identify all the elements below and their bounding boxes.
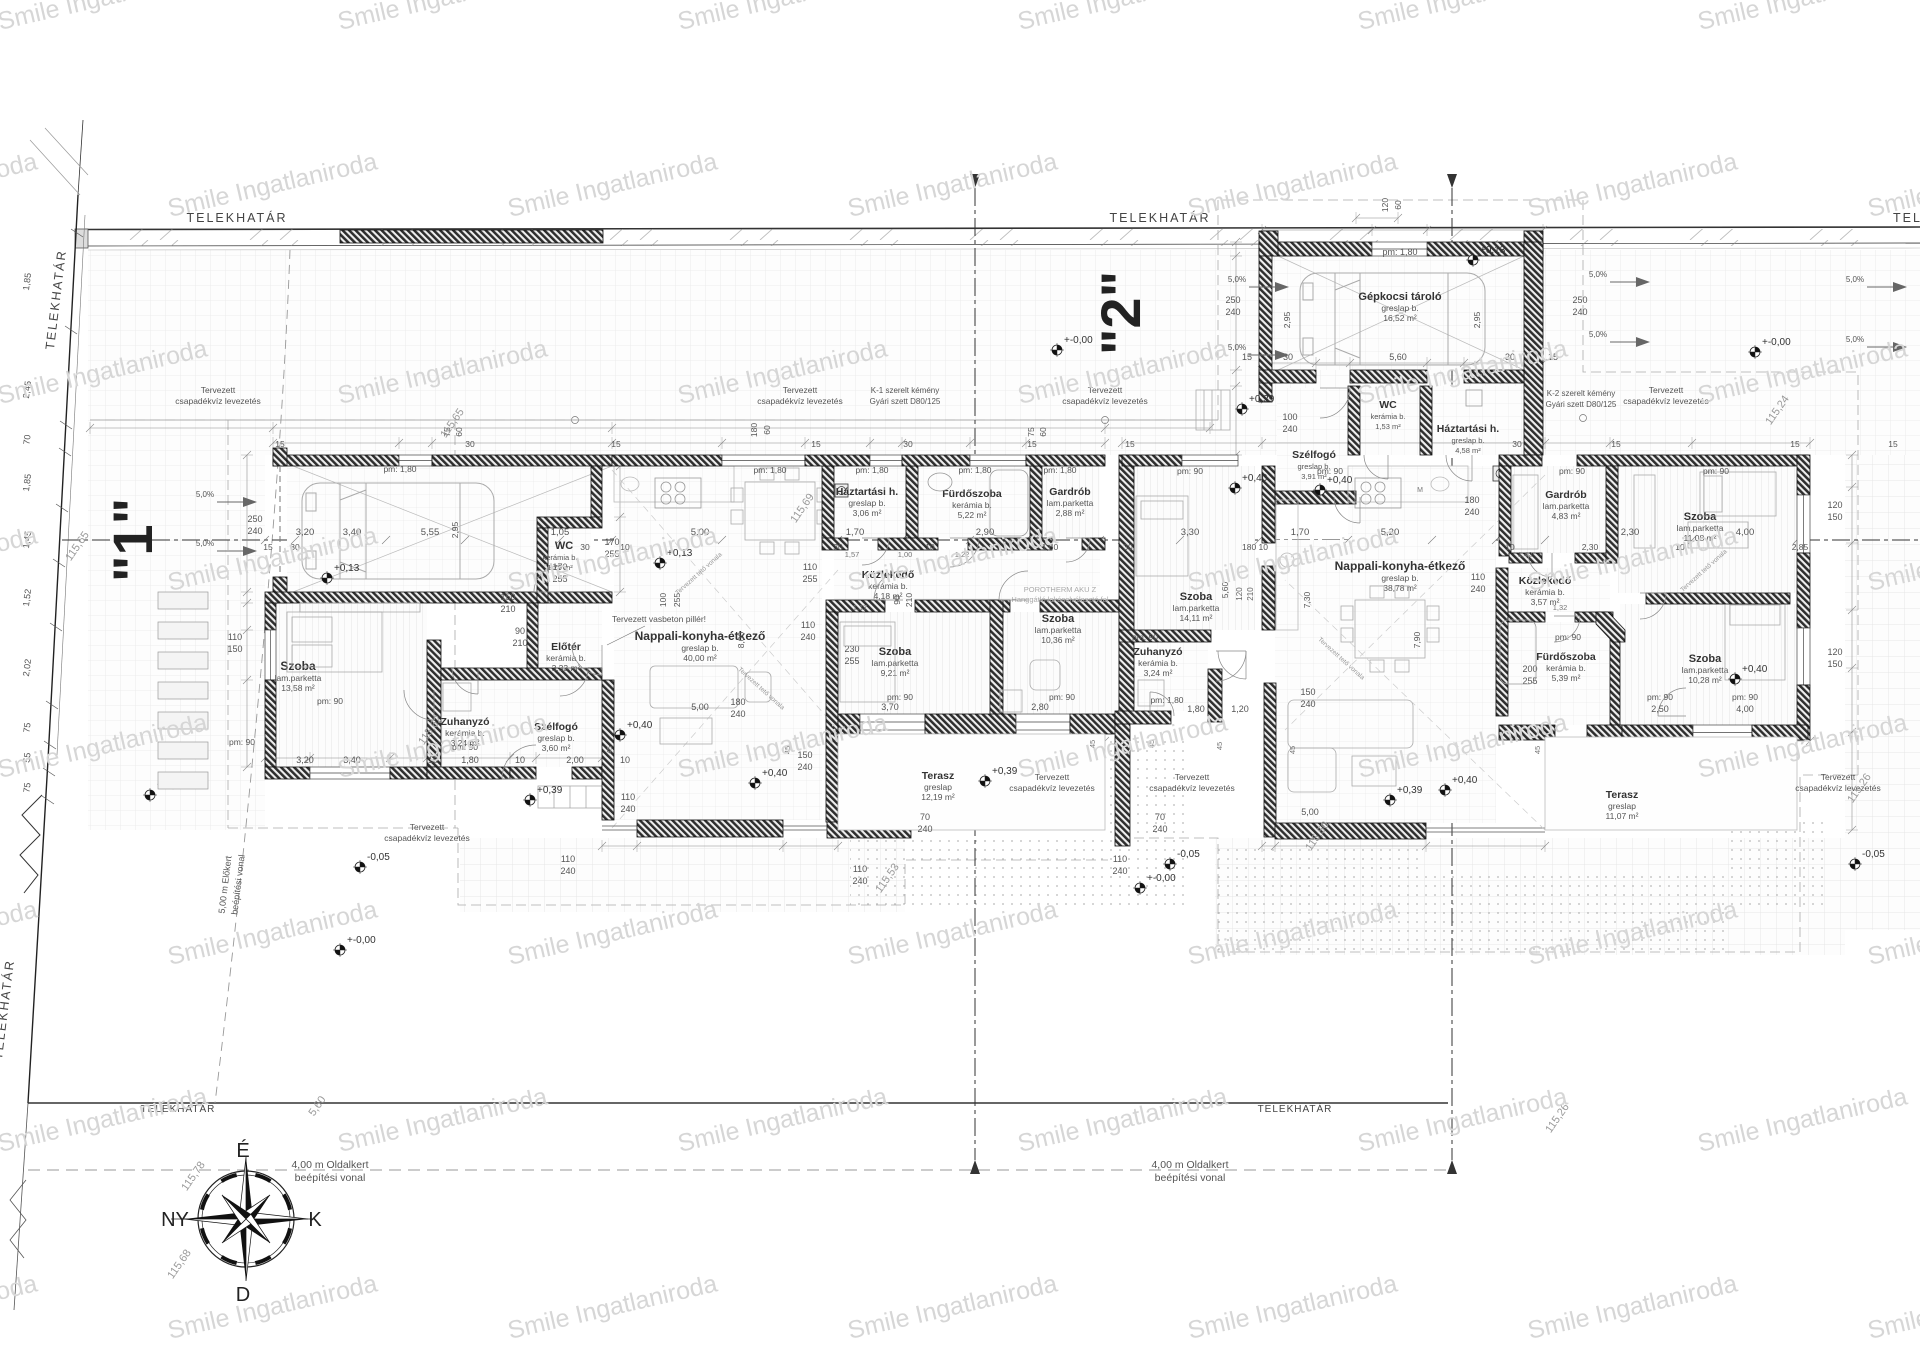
- svg-text:pm: 90: pm: 90: [1647, 692, 1673, 702]
- svg-text:kerámia b.: kerámia b.: [546, 653, 586, 663]
- svg-text:45: 45: [1288, 746, 1297, 754]
- svg-text:-0,05: -0,05: [1177, 849, 1200, 860]
- svg-text:kerámia b.: kerámia b.: [1370, 412, 1405, 421]
- svg-text:240: 240: [1152, 824, 1167, 834]
- svg-text:2,02: 2,02: [21, 658, 33, 677]
- svg-text:4,00 m Oldalkert: 4,00 m Oldalkert: [1151, 1159, 1228, 1171]
- svg-text:+-0,00: +-0,00: [347, 935, 376, 946]
- svg-text:Tervezett: Tervezett: [783, 385, 818, 395]
- svg-text:110: 110: [803, 562, 817, 572]
- svg-text:10: 10: [620, 755, 630, 765]
- svg-text:200: 200: [1522, 664, 1537, 674]
- svg-text:lam.parketta: lam.parketta: [1173, 603, 1220, 613]
- svg-text:240: 240: [1282, 424, 1297, 434]
- svg-text:15: 15: [811, 439, 821, 449]
- svg-text:Nappali-konyha-étkező: Nappali-konyha-étkező: [1335, 559, 1466, 573]
- svg-text:kerámia b.: kerámia b.: [1546, 663, 1586, 673]
- svg-text:1,53 m²: 1,53 m²: [1375, 422, 1401, 431]
- svg-text:csapadékvíz levezetés: csapadékvíz levezetés: [175, 396, 261, 406]
- svg-text:Szoba: Szoba: [879, 646, 912, 658]
- svg-text:pm: 90: pm: 90: [1049, 692, 1075, 702]
- svg-text:150: 150: [1827, 659, 1842, 669]
- svg-text:75: 75: [1026, 427, 1036, 437]
- svg-text:Hanggátló lakáselválasztó fal: Hanggátló lakáselválasztó fal: [1011, 595, 1108, 604]
- svg-text:240: 240: [917, 824, 932, 834]
- svg-text:10,28 m²: 10,28 m²: [1688, 675, 1722, 685]
- svg-text:2,50: 2,50: [1651, 704, 1669, 714]
- svg-text:5,60: 5,60: [1389, 352, 1407, 362]
- svg-text:+0,39: +0,39: [1397, 785, 1423, 796]
- svg-text:70: 70: [920, 812, 930, 822]
- svg-text:1,17: 1,17: [853, 603, 868, 612]
- svg-text:Gépkocsi tároló: Gépkocsi tároló: [1358, 291, 1441, 303]
- svg-text:60: 60: [762, 425, 772, 435]
- svg-text:pm: 1,80: pm: 1,80: [958, 465, 991, 475]
- svg-text:7,30: 7,30: [1302, 591, 1312, 608]
- svg-text:240: 240: [1112, 866, 1127, 876]
- svg-text:+0,13: +0,13: [334, 563, 360, 574]
- svg-text:pm: 90: pm: 90: [229, 737, 255, 747]
- svg-text:2,95: 2,95: [450, 521, 460, 538]
- svg-text:K: K: [308, 1209, 322, 1231]
- svg-text:10: 10: [515, 755, 525, 765]
- svg-text:5,39 m²: 5,39 m²: [1552, 673, 1581, 683]
- svg-text:4,58 m²: 4,58 m²: [1455, 446, 1481, 455]
- svg-text:+0,40: +0,40: [627, 720, 653, 731]
- svg-text:5,0%: 5,0%: [1589, 330, 1607, 339]
- svg-text:15: 15: [1790, 439, 1800, 449]
- svg-text:120: 120: [1827, 647, 1842, 657]
- svg-text:greslap: greslap: [1608, 801, 1636, 811]
- svg-text:110: 110: [561, 854, 575, 864]
- svg-text:Gyári szett D80/125: Gyári szett D80/125: [1546, 400, 1617, 409]
- svg-text:Gardrób: Gardrób: [1049, 486, 1090, 498]
- svg-text:lam.parketta: lam.parketta: [1035, 625, 1082, 635]
- svg-text:M: M: [1417, 487, 1423, 494]
- svg-text:lam.parketta: lam.parketta: [275, 673, 322, 683]
- svg-text:30: 30: [1123, 542, 1133, 552]
- svg-text:Tervezett: Tervezett: [410, 822, 445, 832]
- svg-text:110: 110: [621, 792, 635, 802]
- svg-text:7,90: 7,90: [1412, 631, 1422, 648]
- svg-text:5,0%: 5,0%: [1589, 270, 1607, 279]
- svg-text:pm: 90: pm: 90: [1177, 466, 1203, 476]
- svg-text:K-2 szerelt kémény: K-2 szerelt kémény: [1547, 389, 1615, 398]
- svg-text:250: 250: [247, 514, 262, 524]
- svg-text:pm: 1,80: pm: 1,80: [1043, 465, 1076, 475]
- svg-text:2,80: 2,80: [1031, 702, 1049, 712]
- svg-text:120: 120: [1827, 500, 1842, 510]
- svg-text:240: 240: [797, 762, 812, 772]
- svg-text:60: 60: [1038, 427, 1048, 437]
- svg-text:110: 110: [1113, 854, 1127, 864]
- svg-text:2,00: 2,00: [566, 755, 584, 765]
- svg-text:180: 180: [749, 423, 759, 437]
- svg-text:kerámia b.: kerámia b.: [1138, 658, 1178, 668]
- svg-text:240: 240: [1572, 307, 1587, 317]
- svg-text:5,0%: 5,0%: [1228, 275, 1246, 284]
- svg-text:+-0,00: +-0,00: [1147, 873, 1176, 884]
- svg-text:Háztartási h.: Háztartási h.: [836, 486, 899, 498]
- svg-text:210: 210: [512, 638, 527, 648]
- svg-text:Gardrób: Gardrób: [1545, 489, 1586, 501]
- svg-text:5,22 m²: 5,22 m²: [958, 510, 987, 520]
- svg-text:15: 15: [1125, 439, 1135, 449]
- svg-text:70: 70: [1155, 812, 1165, 822]
- svg-text:+0,40: +0,40: [1327, 475, 1353, 486]
- svg-text:100: 100: [1282, 412, 1297, 422]
- svg-text:kerámia b.: kerámia b.: [952, 500, 992, 510]
- svg-text:Szoba: Szoba: [280, 659, 316, 673]
- svg-text:-0,05: -0,05: [1862, 849, 1885, 860]
- svg-text:110: 110: [801, 620, 815, 630]
- svg-text:30: 30: [1512, 439, 1522, 449]
- svg-text:4,00: 4,00: [1736, 704, 1754, 714]
- svg-text:Szoba: Szoba: [1684, 511, 1717, 523]
- svg-text:240: 240: [852, 876, 867, 886]
- svg-text:30: 30: [833, 542, 843, 552]
- svg-text:120: 120: [1380, 198, 1390, 212]
- svg-text:pm: 90: pm: 90: [1732, 692, 1758, 702]
- svg-text:TELEKHATÁR: TELEKHATÁR: [1258, 1102, 1333, 1115]
- svg-text:150: 150: [1827, 512, 1842, 522]
- svg-text:10,36 m²: 10,36 m²: [1041, 635, 1075, 645]
- svg-text:+0,40: +0,40: [762, 768, 788, 779]
- svg-text:lam.parketta: lam.parketta: [1682, 665, 1729, 675]
- svg-text:csapadékvíz levezetés: csapadékvíz levezetés: [1062, 396, 1148, 406]
- svg-text:16,52 m²: 16,52 m²: [1383, 313, 1417, 323]
- svg-text:pm: 90: pm: 90: [1555, 632, 1581, 642]
- svg-text:3,60 m²: 3,60 m²: [542, 743, 571, 753]
- svg-text:+-0,00: +-0,00: [1762, 337, 1791, 348]
- svg-text:POROTHERM AKU Z: POROTHERM AKU Z: [1024, 585, 1097, 594]
- svg-text:pm: 90: pm: 90: [887, 692, 913, 702]
- svg-text:greslap b.: greslap b.: [681, 643, 718, 653]
- svg-text:240: 240: [1464, 507, 1479, 517]
- svg-text:1,20: 1,20: [1231, 704, 1249, 714]
- svg-text:11,07 m²: 11,07 m²: [1606, 811, 1639, 821]
- svg-text:240: 240: [1300, 699, 1315, 709]
- svg-text:Tervezett: Tervezett: [201, 385, 236, 395]
- svg-text:250: 250: [1572, 295, 1587, 305]
- svg-text:greslap b.: greslap b.: [1381, 573, 1418, 583]
- svg-text:210: 210: [1246, 587, 1255, 601]
- svg-text:Tervezett: Tervezett: [1649, 385, 1684, 395]
- svg-text:Gyári szett D80/125: Gyári szett D80/125: [870, 397, 941, 406]
- svg-text:5,0%: 5,0%: [1228, 343, 1246, 352]
- svg-text:3,20: 3,20: [296, 755, 314, 765]
- svg-text:38,78 m²: 38,78 m²: [1383, 583, 1417, 593]
- svg-text:4,83 m²: 4,83 m²: [1552, 511, 1581, 521]
- svg-text:1,52: 1,52: [21, 588, 33, 607]
- svg-text:pm: 1,80: pm: 1,80: [1382, 247, 1417, 257]
- svg-text:1,32: 1,32: [1553, 603, 1568, 612]
- svg-text:110: 110: [853, 864, 867, 874]
- svg-text:240: 240: [730, 709, 745, 719]
- svg-text:+0,40: +0,40: [1452, 775, 1478, 786]
- svg-text:pm: 1,80: pm: 1,80: [855, 465, 888, 475]
- svg-text:2,88 m²: 2,88 m²: [1056, 508, 1085, 518]
- svg-text:pm: 90: pm: 90: [317, 696, 343, 706]
- svg-text:Szoba: Szoba: [1042, 613, 1075, 625]
- svg-text:230: 230: [844, 644, 859, 654]
- svg-text:+0,13: +0,13: [1480, 245, 1506, 256]
- svg-text:75: 75: [21, 722, 32, 733]
- svg-text:-0,05: -0,05: [367, 852, 390, 863]
- svg-text:pm: 1,80: pm: 1,80: [383, 464, 416, 474]
- svg-text:"1": "1": [101, 498, 164, 582]
- svg-text:45: 45: [1533, 746, 1542, 754]
- svg-text:+0,39: +0,39: [537, 785, 563, 796]
- svg-text:15: 15: [1242, 352, 1252, 362]
- svg-text:100: 100: [658, 593, 668, 607]
- svg-text:210: 210: [500, 604, 515, 614]
- svg-text:150: 150: [227, 644, 242, 654]
- svg-text:1,05: 1,05: [551, 527, 570, 538]
- svg-text:Zuhanyzó: Zuhanyzó: [1134, 646, 1183, 658]
- svg-text:pm: 1,80: pm: 1,80: [753, 465, 786, 475]
- svg-text:WC: WC: [555, 540, 573, 552]
- svg-text:15: 15: [611, 439, 621, 449]
- svg-text:Szoba: Szoba: [1689, 653, 1722, 665]
- svg-text:greslap b.: greslap b.: [848, 498, 885, 508]
- svg-text:30: 30: [903, 439, 913, 449]
- svg-text:3,30: 3,30: [1181, 527, 1200, 538]
- svg-text:240: 240: [620, 804, 635, 814]
- svg-text:30: 30: [465, 439, 475, 449]
- svg-text:csapadékvíz levezetés: csapadékvíz levezetés: [1009, 783, 1095, 793]
- svg-text:1,57: 1,57: [845, 550, 860, 559]
- svg-text:2,95: 2,95: [1472, 311, 1482, 328]
- svg-text:csapadékvíz levezetés: csapadékvíz levezetés: [1623, 396, 1709, 406]
- svg-text:255: 255: [1522, 676, 1537, 686]
- svg-text:Tervezett: Tervezett: [1821, 772, 1856, 782]
- svg-text:4,00 m Oldalkert: 4,00 m Oldalkert: [291, 1159, 368, 1171]
- svg-text:12,19 m²: 12,19 m²: [921, 792, 955, 802]
- svg-text:beépítési vonal: beépítési vonal: [1155, 1172, 1226, 1184]
- svg-text:210: 210: [904, 593, 914, 607]
- svg-text:45: 45: [605, 746, 614, 754]
- svg-text:15: 15: [1611, 439, 1621, 449]
- svg-text:2,85: 2,85: [1792, 542, 1809, 552]
- svg-text:2,95: 2,95: [1282, 311, 1292, 328]
- svg-text:70: 70: [21, 434, 32, 445]
- svg-text:15: 15: [1888, 439, 1898, 449]
- svg-text:2,30: 2,30: [1621, 527, 1640, 538]
- svg-text:15: 15: [1027, 439, 1037, 449]
- svg-text:3,24 m²: 3,24 m²: [1144, 668, 1173, 678]
- svg-text:Tervezett: Tervezett: [1175, 772, 1210, 782]
- svg-text:Háztartási h.: Háztartási h.: [1437, 423, 1500, 435]
- svg-text:Terasz: Terasz: [922, 770, 955, 782]
- svg-text:Fürdőszoba: Fürdőszoba: [942, 488, 1002, 500]
- svg-text:pm: 1,80: pm: 1,80: [1150, 695, 1183, 705]
- svg-text:1,70: 1,70: [1291, 527, 1310, 538]
- svg-text:greslap b.: greslap b.: [1452, 436, 1485, 445]
- svg-text:150: 150: [1300, 687, 1315, 697]
- svg-text:É: É: [236, 1139, 249, 1162]
- svg-text:2,30: 2,30: [1582, 542, 1599, 552]
- svg-text:40,00 m²: 40,00 m²: [683, 653, 717, 663]
- svg-text:110: 110: [228, 632, 242, 642]
- svg-text:120: 120: [1235, 587, 1244, 601]
- svg-text:240: 240: [1225, 307, 1240, 317]
- svg-text:240: 240: [800, 632, 815, 642]
- svg-text:Szélfogó: Szélfogó: [1292, 449, 1336, 461]
- svg-text:Tervezett vasbeton pillér!: Tervezett vasbeton pillér!: [612, 614, 706, 624]
- svg-text:240: 240: [560, 866, 575, 876]
- svg-text:75: 75: [21, 782, 32, 793]
- svg-text:pm: 90: pm: 90: [1559, 466, 1585, 476]
- svg-text:NY: NY: [161, 1209, 189, 1231]
- svg-text:255: 255: [844, 656, 859, 666]
- svg-text:180: 180: [1464, 495, 1479, 505]
- svg-text:14,11 m²: 14,11 m²: [1180, 613, 1213, 623]
- svg-text:5,00: 5,00: [691, 702, 709, 712]
- svg-text:csapadékvíz levezetés: csapadékvíz levezetés: [757, 396, 843, 406]
- svg-text:1,85: 1,85: [21, 473, 33, 492]
- svg-text:1,85: 1,85: [21, 272, 33, 291]
- svg-text:4,00: 4,00: [1736, 527, 1755, 538]
- svg-text:90: 90: [515, 626, 525, 636]
- svg-text:Előtér: Előtér: [551, 641, 581, 653]
- svg-text:1,42: 1,42: [1518, 550, 1533, 559]
- svg-text:pm: 90: pm: 90: [1132, 632, 1158, 642]
- svg-text:5,55: 5,55: [421, 527, 440, 538]
- svg-text:greslap: greslap: [924, 782, 952, 792]
- svg-text:240: 240: [1470, 584, 1485, 594]
- svg-text:lam.parketta: lam.parketta: [1543, 501, 1590, 511]
- svg-text:lam.parketta: lam.parketta: [1047, 498, 1094, 508]
- svg-text:greslap b.: greslap b.: [1381, 303, 1418, 313]
- svg-text:+0,39: +0,39: [992, 766, 1018, 777]
- svg-text:13,58 m²: 13,58 m²: [281, 683, 315, 693]
- svg-text:60: 60: [1393, 200, 1403, 210]
- svg-text:110: 110: [1471, 572, 1485, 582]
- svg-text:csapadékvíz levezetés: csapadékvíz levezetés: [384, 833, 470, 843]
- svg-text:5,00: 5,00: [1301, 807, 1319, 817]
- svg-text:45: 45: [1215, 742, 1224, 750]
- svg-text:8,00: 8,00: [736, 631, 746, 648]
- svg-text:Fürdőszoba: Fürdőszoba: [1536, 651, 1596, 663]
- svg-text:"2": "2": [1089, 271, 1152, 355]
- svg-text:+0,40: +0,40: [1242, 473, 1268, 484]
- svg-text:10: 10: [1505, 542, 1515, 552]
- svg-text:255: 255: [802, 574, 817, 584]
- svg-text:90: 90: [892, 595, 902, 605]
- svg-text:240: 240: [247, 526, 262, 536]
- svg-text:Terasz: Terasz: [1606, 789, 1639, 801]
- svg-text:250: 250: [1225, 295, 1240, 305]
- svg-text:5,0%: 5,0%: [196, 539, 214, 548]
- svg-text:1,80: 1,80: [461, 755, 479, 765]
- svg-text:+0,40: +0,40: [1742, 664, 1768, 675]
- svg-text:3,06 m²: 3,06 m²: [853, 508, 882, 518]
- svg-text:csapadékvíz levezetés: csapadékvíz levezetés: [1149, 783, 1235, 793]
- svg-text:5,0%: 5,0%: [196, 490, 214, 499]
- svg-text:5,0%: 5,0%: [1846, 275, 1864, 284]
- svg-text:15: 15: [275, 439, 285, 449]
- svg-text:K-1 szerelt kémény: K-1 szerelt kémény: [871, 386, 939, 395]
- svg-text:180: 180: [730, 697, 745, 707]
- svg-text:beépítési vonal: beépítési vonal: [295, 1172, 366, 1184]
- svg-text:5,0%: 5,0%: [1846, 335, 1864, 344]
- svg-text:pm: 90: pm: 90: [1703, 466, 1729, 476]
- svg-text:+0,39: +0,39: [1249, 394, 1275, 405]
- svg-text:1,70: 1,70: [846, 527, 865, 538]
